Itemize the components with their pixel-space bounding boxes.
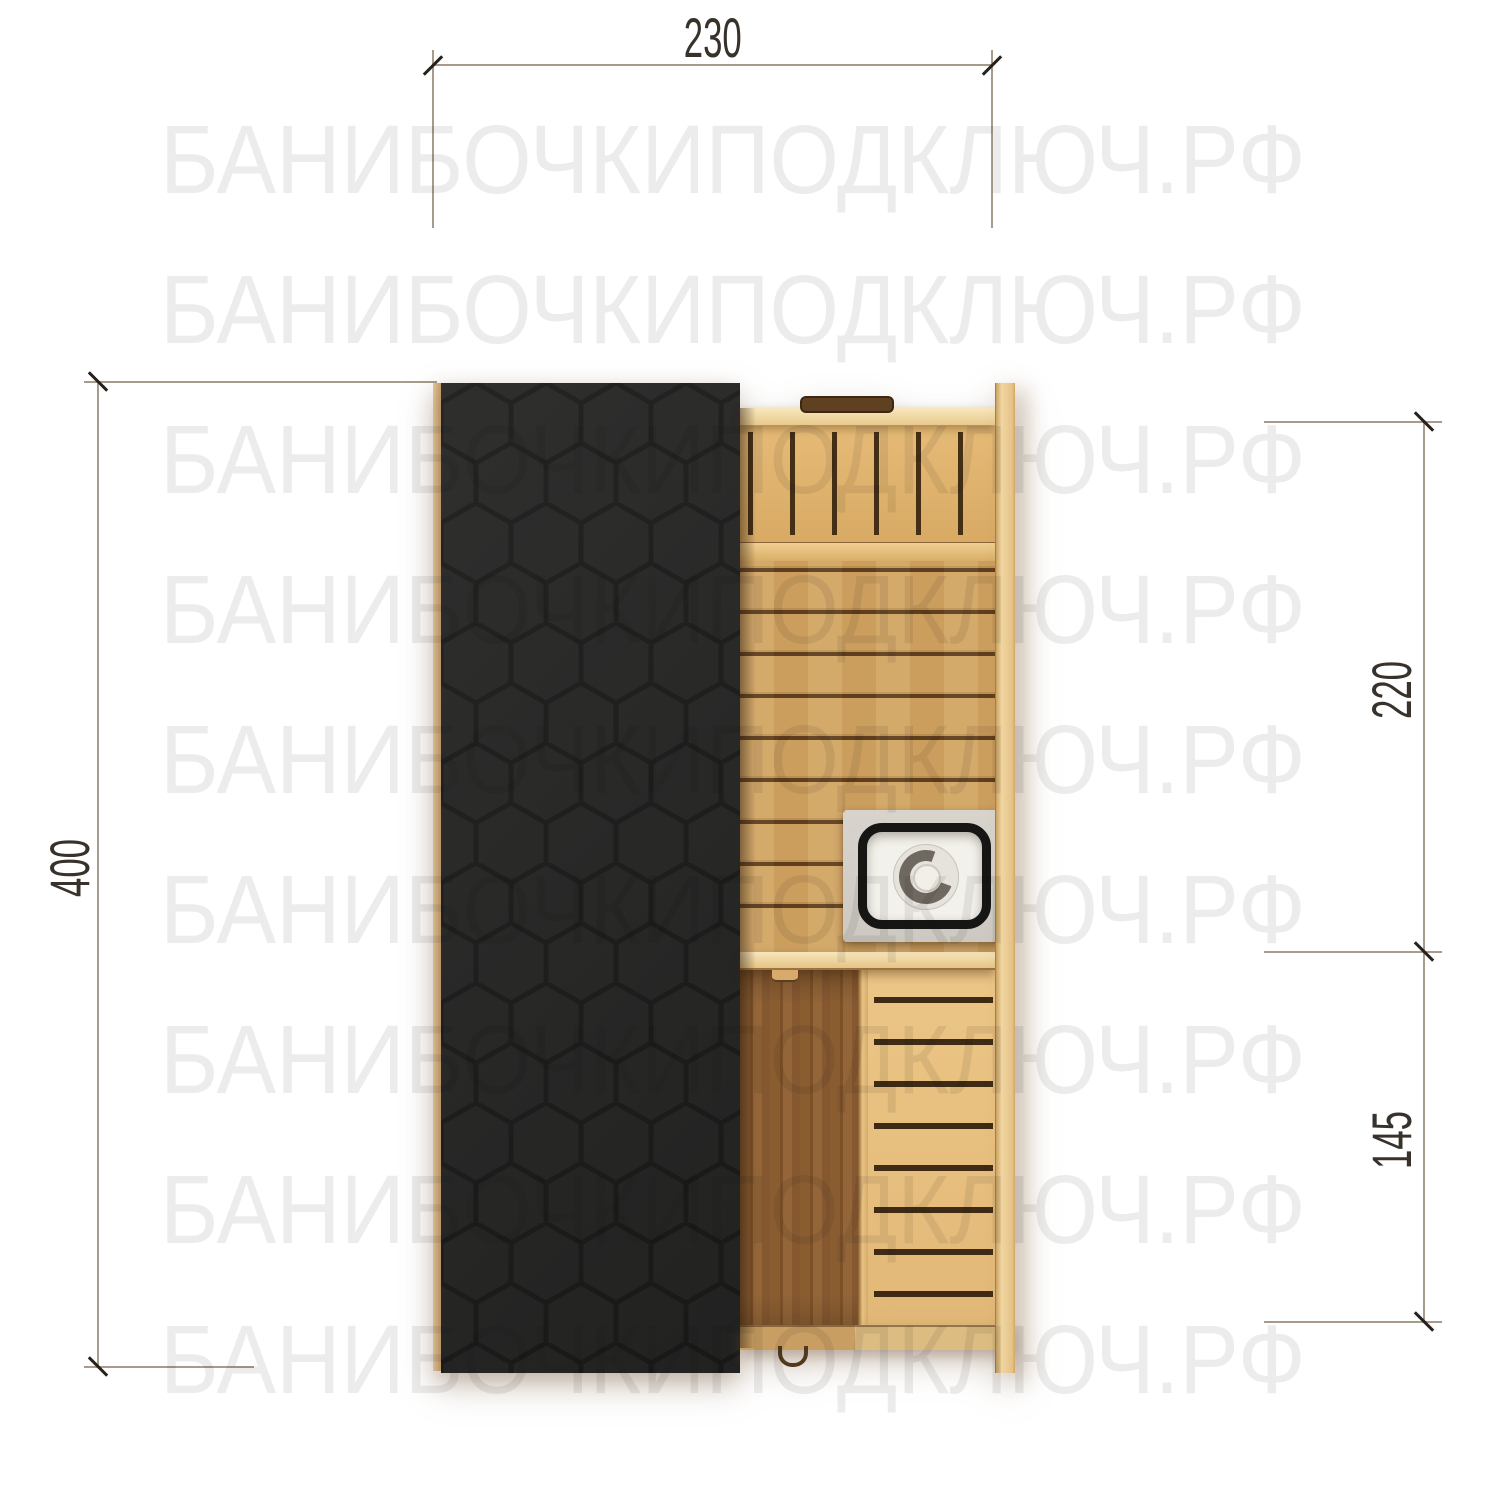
bench-slat-gaps	[874, 963, 993, 1319]
partition-wall	[740, 952, 995, 970]
sauna-building-plan	[433, 383, 1014, 1373]
extension-line	[84, 381, 437, 383]
extension-line	[432, 50, 434, 228]
sauna-stove	[843, 810, 1006, 942]
steam-room-bench	[740, 425, 995, 542]
top-wall-handle	[800, 396, 894, 413]
extension-line	[991, 50, 993, 228]
door-handle	[778, 1346, 808, 1367]
hexagon-shingle-roof	[441, 383, 740, 1373]
chimney-cap	[913, 864, 941, 892]
bench-slat-gaps	[740, 432, 975, 535]
entrance-room-bench	[868, 963, 995, 1325]
extension-line	[1264, 951, 1442, 953]
dimension-label-width: 230	[433, 10, 992, 66]
floor-shading	[740, 968, 858, 1325]
roof-left-wall-edge	[433, 383, 441, 1371]
interior-cutaway	[740, 383, 1014, 1373]
extension-line	[1264, 421, 1442, 423]
dimension-line	[1423, 422, 1425, 1322]
dimension-label-steam-room: 220	[1364, 643, 1420, 736]
right-wall-plank	[995, 383, 1015, 1373]
watermark-text: БАНИБОЧКИПОДКЛЮЧ.РФ	[160, 261, 1306, 358]
watermark-text: БАНИБОЧКИПОДКЛЮЧ.РФ	[160, 111, 1306, 208]
sauna-plan-drawing: 230 400 220 145	[0, 0, 1500, 1500]
stove-chimney	[893, 844, 959, 910]
roof-shading	[441, 383, 740, 1373]
bench-front-rail	[740, 542, 995, 561]
partition-door-hinge	[772, 970, 798, 982]
dimension-label-entrance-room: 145	[1364, 1093, 1420, 1186]
extension-line	[1264, 1321, 1442, 1323]
dimension-label-length: 400	[42, 821, 98, 914]
entrance-room-floor	[740, 968, 858, 1325]
bench-edge-board	[858, 965, 868, 1325]
extension-line	[84, 1366, 254, 1368]
